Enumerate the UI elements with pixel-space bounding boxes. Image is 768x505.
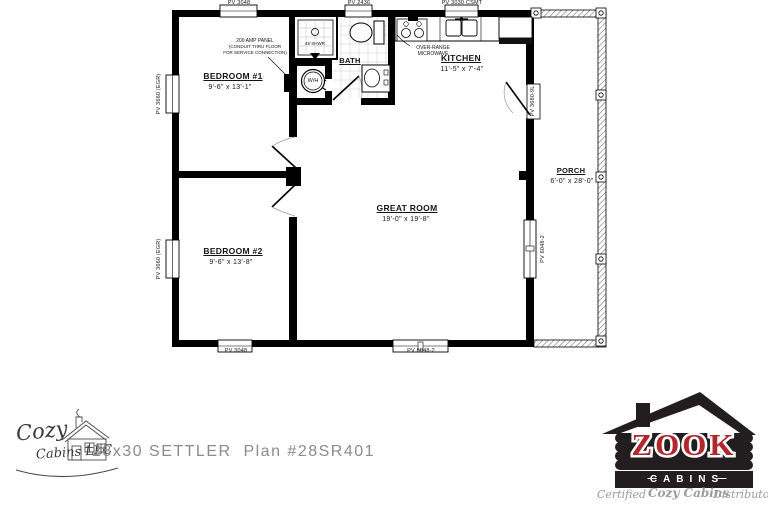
plan-title: 28x30 SETTLER Plan #28SR401 [92,443,375,461]
window-tag-top-kitchen: PV 3030 CSMT [442,0,483,6]
floor-plan-page: { "plan": { "rooms": { "bedroom1": {"nam… [0,0,768,505]
amp-panel-note-line3: FOR SERVICE CONNECTION) [223,50,286,56]
shower-size-label: 48 SHWR [305,41,325,47]
window-tag-top-bedroom1: PV 3048 [228,0,251,6]
bedroom1-dims: 9'-6" x 13'-1" [208,84,251,92]
zook-logo-cabins-label: CABINS [650,474,724,485]
bedroom2-label: BEDROOM #2 [203,247,262,256]
zook-logo-wordmark: ZOOK [631,428,736,462]
zook-logo-dash-right: — [718,474,727,484]
bedroom2-dims: 9'-6" x 13'-8" [209,259,252,267]
vanity-fixture [362,65,390,92]
bedroom1-label: BEDROOM #1 [203,72,262,81]
window-tag-left-bedroom2: PV 3660 (EGR) [156,239,162,280]
great-room-label: GREAT ROOM [377,204,438,213]
range-fixture [397,17,427,41]
great-room-dims: 19'-0" x 19'-8" [382,216,430,224]
zook-tagline-distributor: Distributor [713,489,768,501]
door-tag-porch: PV 3680-9L [530,85,536,116]
kitchen-dims: 11'-5" x 7'-4" [441,66,484,74]
toilet-fixture [350,21,384,44]
shower-fixture [294,16,337,60]
window-tag-bottom-great-room: PV 6048-2 [407,348,435,354]
window-tag-east-great-room: PV 6048-2 [540,235,546,263]
floor-plan-drawing [0,0,768,375]
water-heater-label: W/H [308,78,319,84]
porch-label: PORCH [557,167,586,175]
zook-tagline-certified: Certified [597,489,646,501]
kitchen-sink-fixture [446,17,477,36]
doors [272,76,530,216]
porch-dims: 6'-0" x 28'-0" [550,178,593,186]
window-tag-bottom-bedroom2: PV 3048 [225,348,248,354]
porch-posts [531,8,606,346]
window-tag-top-bath: PV 2436 [348,0,371,6]
microwave-note-line2: MICROWAVE [418,51,449,57]
refrigerator-fixture [499,17,532,44]
window-tag-left-bedroom1: PV 3660 (EGR) [156,74,162,115]
bath-label: BATH [339,57,360,65]
